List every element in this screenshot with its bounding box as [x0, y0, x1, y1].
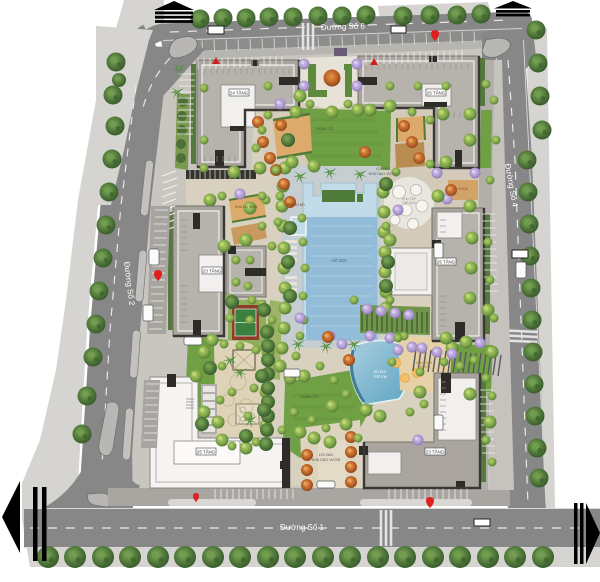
svg-text:Đường Số 6: Đường Số 6 [321, 21, 366, 32]
svg-text:TRẺ EM: TRẺ EM [373, 374, 387, 379]
svg-text:KHU DẠO VƯỜN: KHU DẠO VƯỜN [369, 171, 398, 176]
svg-text:THỂ DỤC: THỂ DỤC [402, 200, 417, 205]
svg-text:THẢM CỎ: THẢM CỎ [315, 126, 333, 131]
svg-text:23 TẦNG: 23 TẦNG [426, 450, 445, 455]
svg-text:25 TẦNG: 25 TẦNG [427, 91, 446, 96]
svg-text:25 TẦNG: 25 TẦNG [437, 260, 456, 265]
svg-text:YOGA: YOGA [458, 187, 469, 191]
svg-text:LỐI VÀO: LỐI VÀO [376, 166, 391, 171]
svg-text:Đường Số 1: Đường Số 1 [280, 523, 325, 532]
svg-text:23 TẦNG: 23 TẦNG [203, 269, 222, 274]
svg-text:KHU ĐI BỘ: KHU ĐI BỘ [287, 202, 305, 207]
svg-text:THẢM CỎ: THẢM CỎ [300, 394, 318, 399]
svg-text:24 TẦNG: 24 TẦNG [230, 91, 249, 96]
svg-text:25 TẦNG: 25 TẦNG [197, 450, 216, 455]
svg-text:KHU DẠO VƯỜN: KHU DẠO VƯỜN [312, 457, 341, 462]
svg-text:HỒ BƠI: HỒ BƠI [332, 258, 347, 263]
svg-text:KHU DG SINH: KHU DG SINH [235, 205, 258, 209]
svg-text:TRẺ EM: TRẺ EM [418, 364, 430, 369]
svg-text:HỒ BƠI: HỒ BƠI [374, 369, 387, 374]
svg-text:LỐI VÀO: LỐI VÀO [319, 452, 334, 457]
